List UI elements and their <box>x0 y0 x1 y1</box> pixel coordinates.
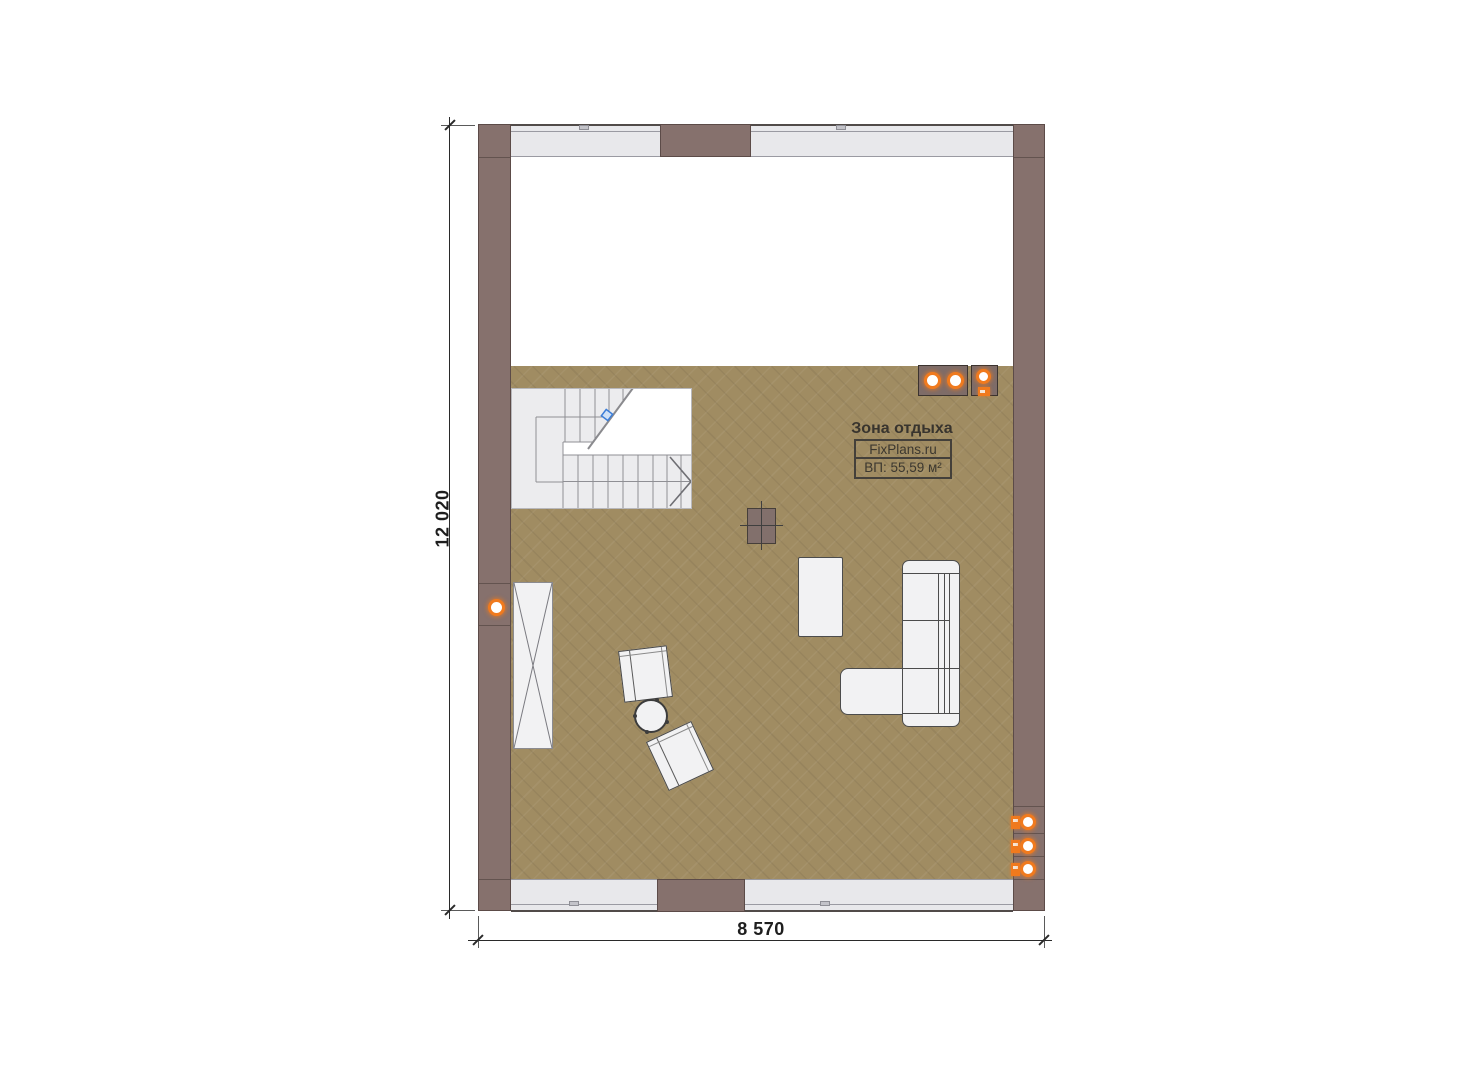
wall-left <box>478 124 511 911</box>
pier-bottom-center <box>657 879 745 912</box>
wall-light-icon <box>1020 838 1036 854</box>
spot-light-icon <box>924 372 941 389</box>
spot-light-icon <box>976 369 991 384</box>
area-label: ВП: 55,59 м² <box>856 459 950 477</box>
wall-right <box>1013 124 1045 911</box>
wall-light[interactable] <box>1011 859 1039 879</box>
light-fixture-panel[interactable] <box>918 365 968 396</box>
zone-title: Зона отдыха <box>837 420 967 438</box>
sofa-body <box>902 560 960 727</box>
dimension-width-label: 8 570 <box>711 919 811 940</box>
switch-icon <box>978 387 990 396</box>
wall-light-icon <box>1020 861 1036 877</box>
staircase[interactable] <box>511 388 692 509</box>
pier-top-center <box>660 124 751 157</box>
window-bottom-right <box>745 879 1013 912</box>
dimension-height-label: 12 020 <box>433 484 454 554</box>
floor-plan-canvas: Зона отдыха FixPlans.ru ВП: 55,59 м² 12 … <box>0 0 1474 1080</box>
plan-info-table: FixPlans.ru ВП: 55,59 м² <box>854 439 952 479</box>
sofa[interactable] <box>840 560 960 727</box>
spot-light-icon <box>947 372 964 389</box>
armchair-1[interactable] <box>618 645 673 703</box>
window-bottom-left <box>511 879 657 912</box>
wall-light[interactable] <box>1011 836 1039 856</box>
side-table[interactable] <box>634 699 668 733</box>
wall-light[interactable] <box>1011 812 1039 832</box>
coffee-table[interactable] <box>798 557 843 637</box>
wall-light-icon <box>1020 814 1036 830</box>
brand-label: FixPlans.ru <box>856 441 950 459</box>
dimension-line-horizontal <box>468 940 1052 941</box>
open-void-area <box>511 157 1013 366</box>
light-fixture-panel[interactable] <box>971 365 998 396</box>
sofa-chaise <box>840 668 903 715</box>
window-top-right <box>750 124 1013 157</box>
armrest-line <box>629 651 636 701</box>
wardrobe[interactable] <box>513 582 553 749</box>
wall-light-icon[interactable] <box>488 599 505 616</box>
